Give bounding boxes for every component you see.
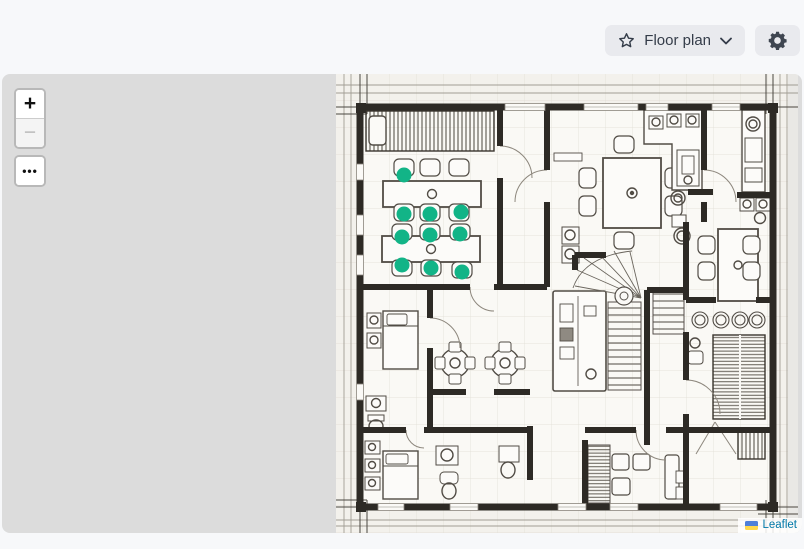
map-container[interactable]: + − ••• Leaflet [2, 74, 802, 533]
map-marker[interactable] [453, 227, 468, 242]
map-marker[interactable] [397, 207, 412, 222]
header: Floor plan [0, 0, 804, 74]
zoom-in-button[interactable]: + [16, 90, 44, 119]
map-marker[interactable] [455, 265, 470, 280]
more-options-control: ••• [14, 155, 46, 187]
floorplan-svg [336, 74, 798, 533]
map-marker[interactable] [423, 207, 438, 222]
settings-button[interactable] [755, 25, 800, 56]
zoom-control: + − [14, 88, 46, 149]
star-icon [618, 32, 635, 49]
map-marker[interactable] [395, 230, 410, 245]
map-marker[interactable] [423, 228, 438, 243]
gear-icon [767, 30, 788, 51]
map-marker[interactable] [424, 261, 439, 276]
map-marker[interactable] [395, 258, 410, 273]
leaflet-attribution: Leaflet [738, 518, 802, 533]
floor-plan-button[interactable]: Floor plan [605, 25, 745, 56]
leaflet-link[interactable]: Leaflet [762, 519, 797, 531]
floor-plan-button-label: Floor plan [644, 32, 711, 49]
ukraine-flag-icon [745, 521, 758, 530]
map-marker[interactable] [454, 205, 469, 220]
zoom-out-button[interactable]: − [16, 119, 44, 147]
floor-plan-layer[interactable] [336, 74, 798, 533]
chevron-down-icon [720, 37, 732, 45]
map-marker[interactable] [397, 168, 412, 183]
more-options-button[interactable]: ••• [16, 157, 44, 185]
